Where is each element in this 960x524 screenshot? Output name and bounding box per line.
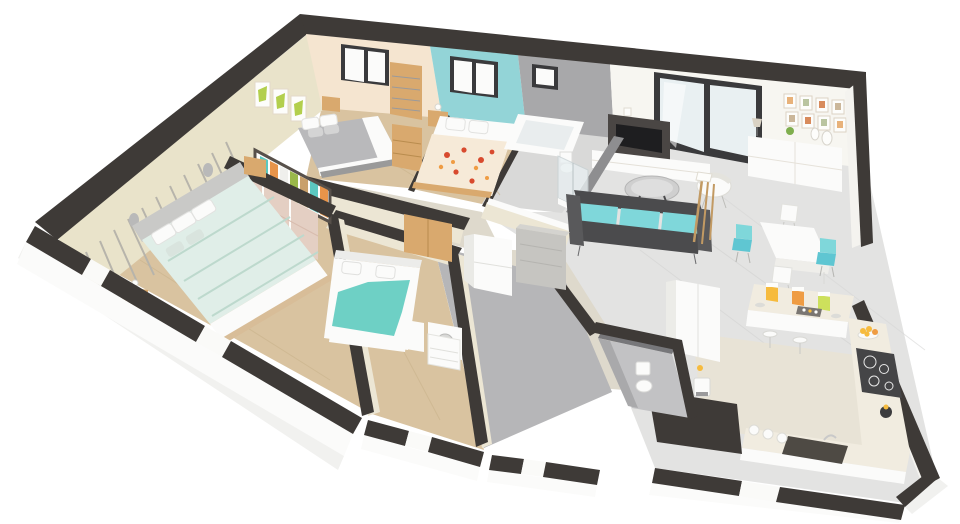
- small-appliance: [697, 365, 703, 371]
- canister: [749, 425, 759, 435]
- floorplan-render-canvas: [0, 0, 960, 524]
- shelf-decor: [624, 108, 631, 116]
- plate: [831, 314, 841, 318]
- nightstand: [322, 96, 340, 112]
- canister: [777, 433, 787, 443]
- pillow: [445, 117, 465, 131]
- storage-jar-yellow: [766, 286, 778, 302]
- plate: [755, 303, 765, 307]
- white-dresser: [428, 334, 460, 370]
- blue-bedroom-window: [450, 56, 498, 98]
- lamp-head: [696, 172, 712, 182]
- window-pane: [476, 63, 494, 95]
- wooden-dresser: [392, 124, 422, 172]
- storage-jar-lime: [818, 295, 830, 311]
- bar-stool: [793, 337, 807, 343]
- master-window: [341, 44, 389, 86]
- toilet-tank: [636, 362, 650, 375]
- storage-jar-orange: [792, 290, 804, 306]
- concrete-counter: [516, 224, 570, 290]
- floorplan-3d-svg: [0, 0, 960, 524]
- window-pane: [345, 48, 364, 82]
- bar-stool: [763, 331, 777, 337]
- door-threshold: [521, 459, 546, 477]
- pillow: [468, 120, 488, 134]
- teal-blanket-bed: [324, 250, 422, 352]
- window-pane: [536, 68, 554, 86]
- tall-shelf-unit: [390, 62, 422, 120]
- vase: [811, 128, 819, 140]
- toilet-bowl: [636, 380, 652, 392]
- window-pane: [454, 60, 472, 93]
- pillow: [375, 265, 395, 279]
- window-pane: [368, 51, 385, 83]
- lamp: [435, 104, 441, 110]
- bathroom-window: [532, 64, 558, 90]
- vase: [822, 131, 832, 145]
- pillow: [341, 261, 361, 275]
- plant: [786, 127, 794, 135]
- canister: [763, 429, 773, 439]
